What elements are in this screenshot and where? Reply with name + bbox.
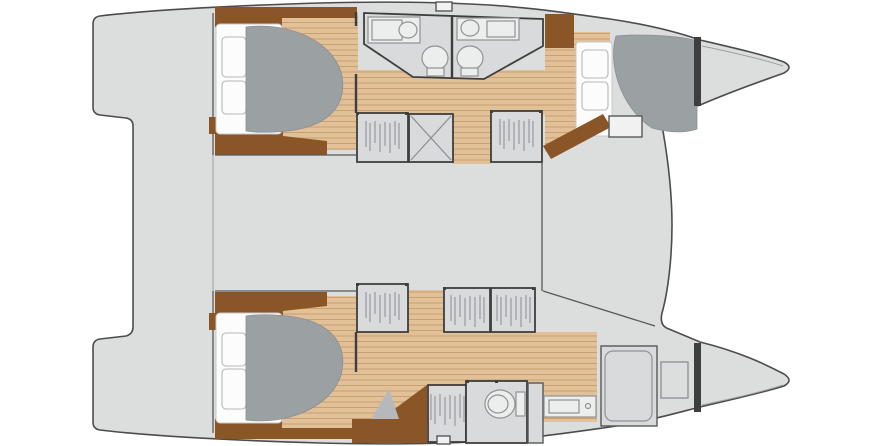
- owner-shower-room: [601, 346, 657, 426]
- aft-head-toilet-tank: [427, 68, 444, 76]
- upper-fwd-berth-pillow: [582, 82, 608, 110]
- owner-vanity-sink: [544, 396, 596, 417]
- lower-corridor-passage-floor: [408, 290, 445, 334]
- upper-stern-door: [209, 117, 216, 134]
- lower-wardrobe-aft: [356, 283, 408, 332]
- owner-wardrobe: [428, 385, 466, 444]
- lower-aft-berth-pillow: [222, 369, 246, 409]
- owner-hanging-locker: [528, 383, 543, 443]
- upper-aft-berth-pillow: [222, 37, 246, 77]
- lower-aft-cabin-shelf: [281, 428, 357, 439]
- lower-stern-door: [209, 313, 216, 330]
- lower-collision-bulkhead: [694, 343, 701, 412]
- upper-corridor-passage-floor: [452, 111, 491, 164]
- lower-wardrobe-mid: [443, 287, 490, 332]
- owner-toilet-room: [466, 380, 527, 443]
- upper-fwd-berth-pillow: [582, 50, 608, 78]
- upper-companionway-steps: [409, 114, 453, 162]
- upper-wardrobe-aft: [356, 112, 408, 162]
- upper-step-locker: [609, 116, 642, 137]
- aft-head-sink: [399, 22, 417, 38]
- fwd-head-toilet-tank: [461, 68, 478, 76]
- lower-aft-berth-pillow: [222, 333, 246, 366]
- fwd-head-toilet: [457, 46, 483, 70]
- lower-wardrobe-fwd: [491, 287, 535, 332]
- deck-hatch: [436, 2, 452, 11]
- upper-aft-cabin-shelf: [281, 7, 357, 18]
- aft-head-toilet: [422, 46, 448, 70]
- floor-plan-svg: [0, 0, 890, 446]
- upper-fwd-cabin-cabinet: [545, 14, 574, 48]
- upper-wardrobe-fwd: [490, 110, 542, 162]
- upper-aft-berth-pillow: [222, 81, 246, 114]
- fwd-head-sink: [461, 20, 479, 36]
- catamaran-floor-plan: [0, 0, 890, 446]
- upper-collision-bulkhead: [694, 37, 701, 106]
